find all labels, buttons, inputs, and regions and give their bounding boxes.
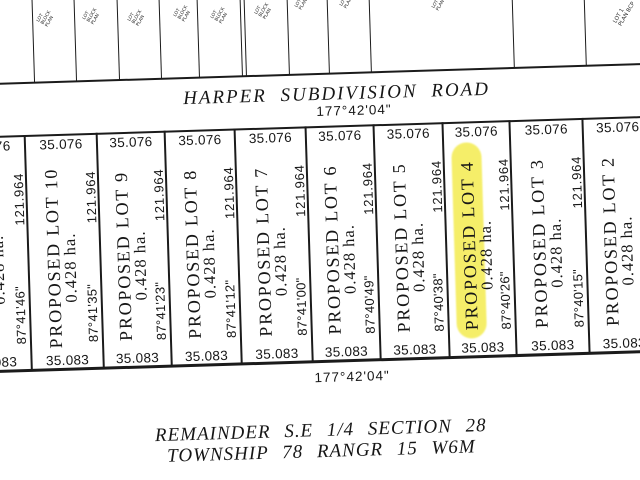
illegible-plan-label: LOT BLOCK PLAN <box>210 4 231 25</box>
illegible-plan-label: LOT PLAN <box>431 0 446 12</box>
boundary-bearing-label: 87°40'38" <box>430 256 447 348</box>
boundary-length-label: 121.964 <box>82 157 98 237</box>
generated-survey-elements: LOT BLOCK PLANLOT BLOCK PLANLOT BLOCK PL… <box>0 0 633 10</box>
adjacent-lot-line-11 <box>583 0 587 66</box>
adjacent-lot-line-10 <box>511 0 515 68</box>
lot-area-label: 0.428 ha. <box>339 204 360 314</box>
illegible-plan-label: LOT PLAN <box>339 0 354 10</box>
lot-bottom-frontage: 35.083 <box>174 348 238 365</box>
boundary-length-label: 121.964 <box>10 159 26 239</box>
adjacent-lot-line-9 <box>368 0 372 72</box>
adjacent-lot-line-8 <box>326 0 330 74</box>
lot-bottom-frontage: 35.083 <box>105 350 169 367</box>
boundary-bearing-label: 87°41'46" <box>12 269 29 361</box>
boundary-length-label: 121.964 <box>495 144 511 224</box>
illegible-plan-label: LOT PLAN <box>294 0 309 11</box>
map-canvas: HARPER SUBDIVISION ROAD 177°42'04" 177°4… <box>0 0 640 480</box>
boundary-bearing-label: 87°41'00" <box>293 260 310 352</box>
lot-top-frontage: 35.076 <box>0 138 21 155</box>
illegible-plan-label: LOT 1 PLAN BCP <box>612 0 636 28</box>
lot-top-frontage: 35.076 <box>29 136 93 153</box>
illegible-plan-label: LOT BLOCK PLAN <box>173 2 194 23</box>
boundary-bearing-label: 87°40'15" <box>569 252 586 344</box>
lot-bottom-frontage: 35.083 <box>521 337 585 354</box>
lot-area-label: 0.428 ha. <box>60 212 81 322</box>
lot-top-frontage: 35.076 <box>168 132 232 149</box>
illegible-plan-label: LOT BLOCK PLAN <box>254 0 275 21</box>
lot-bottom-frontage: 35.083 <box>0 354 28 371</box>
boundary-length-label: 121.964 <box>220 153 236 233</box>
boundary-bearing-label: 87°40'26" <box>497 254 514 346</box>
boundary-length-label: 121.964 <box>428 146 444 226</box>
lot-top-frontage: 35.076 <box>308 127 372 144</box>
lot-top-frontage: 35.076 <box>444 123 508 140</box>
boundary-bearing-label: 87°40'49" <box>361 258 378 350</box>
lot-top-frontage: 35.076 <box>238 129 302 146</box>
lot-area-label: 0.428 ha. <box>617 195 638 305</box>
lot-top-frontage: 35.076 <box>99 134 163 151</box>
lot-bottom-frontage: 35.083 <box>383 341 447 358</box>
boundary-bearing-label: 87°41'12" <box>222 263 239 355</box>
boundary-length-label: 121.964 <box>150 155 166 235</box>
adjacent-lot-line-6 <box>243 0 247 76</box>
boundary-length-label: 121.964 <box>359 148 375 228</box>
bottom-bearing-label: 177°42'04" <box>232 365 472 387</box>
remainder-text: REMAINDER S.E 1/4 SECTION 28 TOWNSHIP 78… <box>81 413 562 470</box>
lot-area-label: 0.428 ha. <box>0 215 9 325</box>
lot-bottom-frontage: 35.083 <box>314 343 378 360</box>
lot-area-label: 0.428 ha. <box>475 200 496 310</box>
adjacent-lot-line-3 <box>158 0 162 79</box>
lot-top-frontage: 35.076 <box>514 121 578 138</box>
lot-area-label: 0.428 ha. <box>269 206 290 316</box>
lot-bottom-frontage: 35.083 <box>245 345 309 362</box>
boundary-bearing-label: 87°41'35" <box>84 267 101 359</box>
lot-bottom-frontage: 35.083 <box>451 339 515 356</box>
adjacent-lot-line-1 <box>73 0 77 81</box>
boundary-bearing-label: 87°41'23" <box>152 265 169 357</box>
lot-area-label: 0.428 ha. <box>130 210 151 320</box>
boundary-length-label: 121.964 <box>568 142 584 222</box>
adjacent-lot-line-7 <box>286 0 290 75</box>
adjacent-lot-line-4 <box>196 0 200 78</box>
lot-area-label: 0.428 ha. <box>407 202 428 312</box>
plat-map-scan: HARPER SUBDIVISION ROAD 177°42'04" 177°4… <box>0 0 640 480</box>
adjacent-lot-line-2 <box>116 0 120 80</box>
boundary-length-label: 121.964 <box>291 150 307 230</box>
illegible-plan-label: LOT BLOCK PLAN <box>36 8 57 29</box>
illegible-plan-label: LOT BLOCK PLAN <box>82 5 103 26</box>
lot-top-frontage: 35.076 <box>585 119 640 136</box>
lot-top-frontage: 35.076 <box>376 125 440 142</box>
adjacent-lot-line-0 <box>31 0 35 83</box>
adjacent-lot-line-5 <box>239 0 243 76</box>
illegible-plan-label: LOT BLOCK PLAN <box>127 7 148 28</box>
lot-area-label: 0.428 ha. <box>199 208 220 318</box>
lot-area-label: 0.428 ha. <box>545 198 566 308</box>
lot-bottom-frontage: 35.083 <box>35 352 99 369</box>
